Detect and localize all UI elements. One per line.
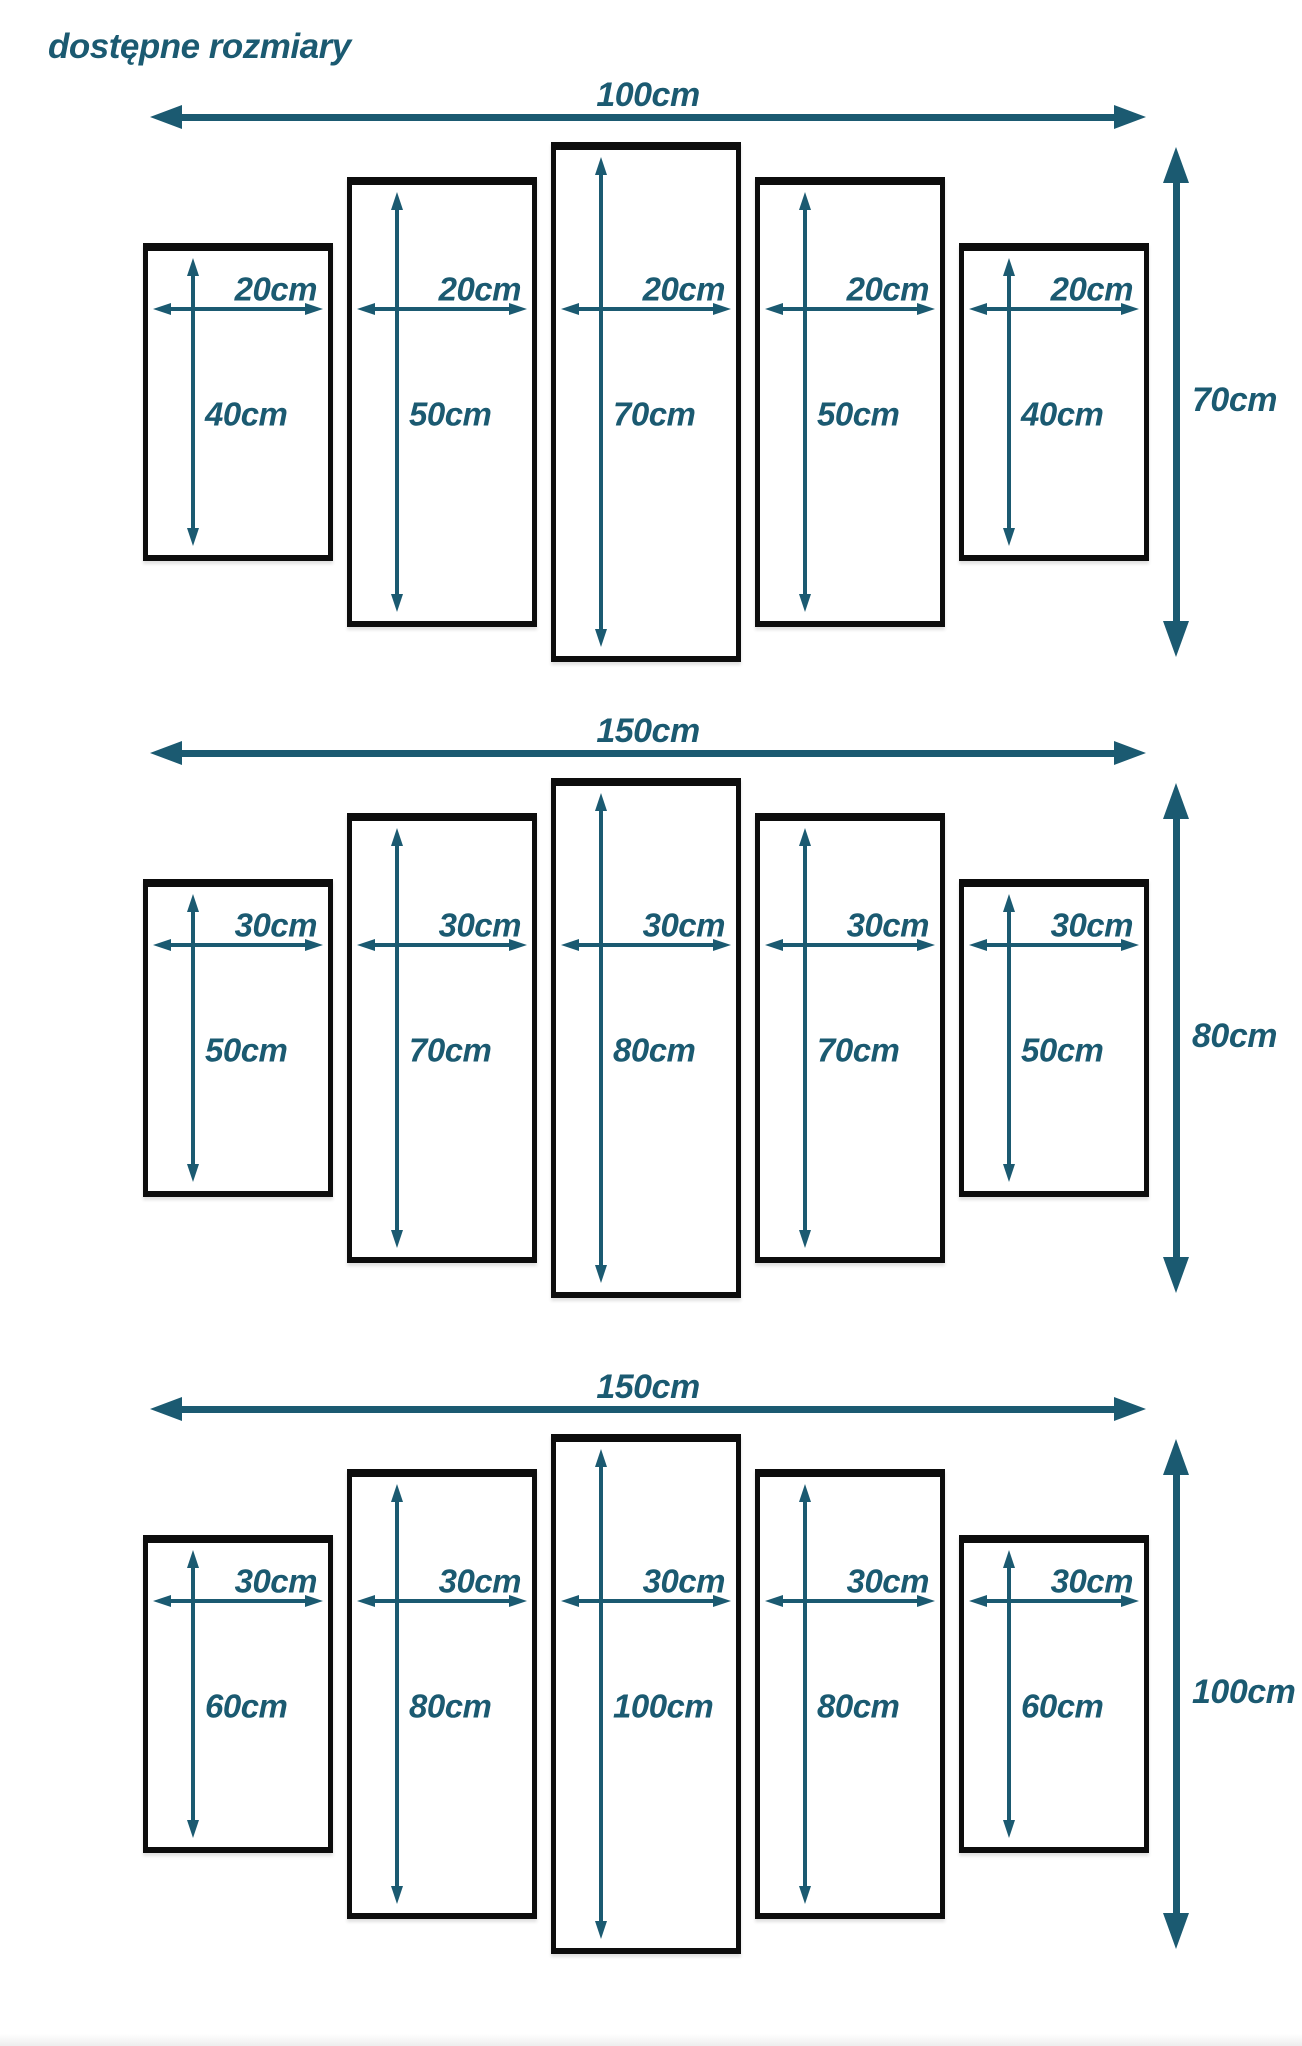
arrowhead-left-icon: [147, 1397, 182, 1421]
arrowhead-down-icon: [595, 1921, 607, 1942]
arrow-line: [1007, 1560, 1011, 1828]
panel-height-label: 100cm: [613, 1690, 713, 1723]
arrow-line: [163, 1599, 313, 1603]
panel-width-label: 30cm: [551, 1565, 725, 1598]
total-height-label: 100cm: [1192, 1675, 1295, 1709]
panel-width-label: 30cm: [959, 1565, 1133, 1598]
arrow-line: [191, 1560, 195, 1828]
arrowhead-up-icon: [1003, 1547, 1015, 1568]
panel-height-arrow: [595, 1446, 608, 1942]
arrowhead-up-icon: [391, 1481, 403, 1502]
panel-height-arrow: [187, 1547, 200, 1841]
panel-height-arrow: [799, 1481, 812, 1907]
arrow-line: [1173, 1467, 1180, 1921]
arrow-line: [979, 1599, 1129, 1603]
arrow-line: [599, 1459, 603, 1929]
arrow-line: [174, 1406, 1122, 1413]
panel-height-arrow: [391, 1481, 404, 1907]
arrow-line: [775, 1599, 925, 1603]
total-height-arrow: [1163, 1436, 1190, 1952]
arrowhead-down-icon: [1163, 1913, 1189, 1952]
panel-height-label: 80cm: [817, 1690, 899, 1723]
arrowhead-right-icon: [1114, 1397, 1149, 1421]
panel-height-label: 80cm: [409, 1690, 491, 1723]
panel-width-label: 30cm: [347, 1565, 521, 1598]
arrow-line: [395, 1494, 399, 1894]
cropped-photo-edge: [0, 2034, 1302, 2046]
arrow-line: [367, 1599, 517, 1603]
arrowhead-up-icon: [595, 1446, 607, 1467]
size-diagram-canvas: dostępne rozmiary 100cm70cm20cm40cm20cm5…: [0, 0, 1302, 2046]
arrow-line: [803, 1494, 807, 1894]
size-variant-3: 150cm100cm30cm60cm30cm80cm30cm100cm30cm8…: [0, 0, 1302, 2046]
arrowhead-down-icon: [799, 1886, 811, 1907]
arrowhead-down-icon: [187, 1820, 199, 1841]
arrow-line: [571, 1599, 721, 1603]
total-width-label: 150cm: [596, 1370, 699, 1404]
panel-width-label: 30cm: [755, 1565, 929, 1598]
arrowhead-down-icon: [1003, 1820, 1015, 1841]
arrowhead-up-icon: [1163, 1436, 1189, 1475]
panel-height-label: 60cm: [205, 1690, 287, 1723]
arrowhead-down-icon: [391, 1886, 403, 1907]
panel-height-label: 60cm: [1021, 1690, 1103, 1723]
panel-height-arrow: [1003, 1547, 1016, 1841]
panel-width-label: 30cm: [143, 1565, 317, 1598]
arrowhead-up-icon: [187, 1547, 199, 1568]
arrowhead-up-icon: [799, 1481, 811, 1502]
